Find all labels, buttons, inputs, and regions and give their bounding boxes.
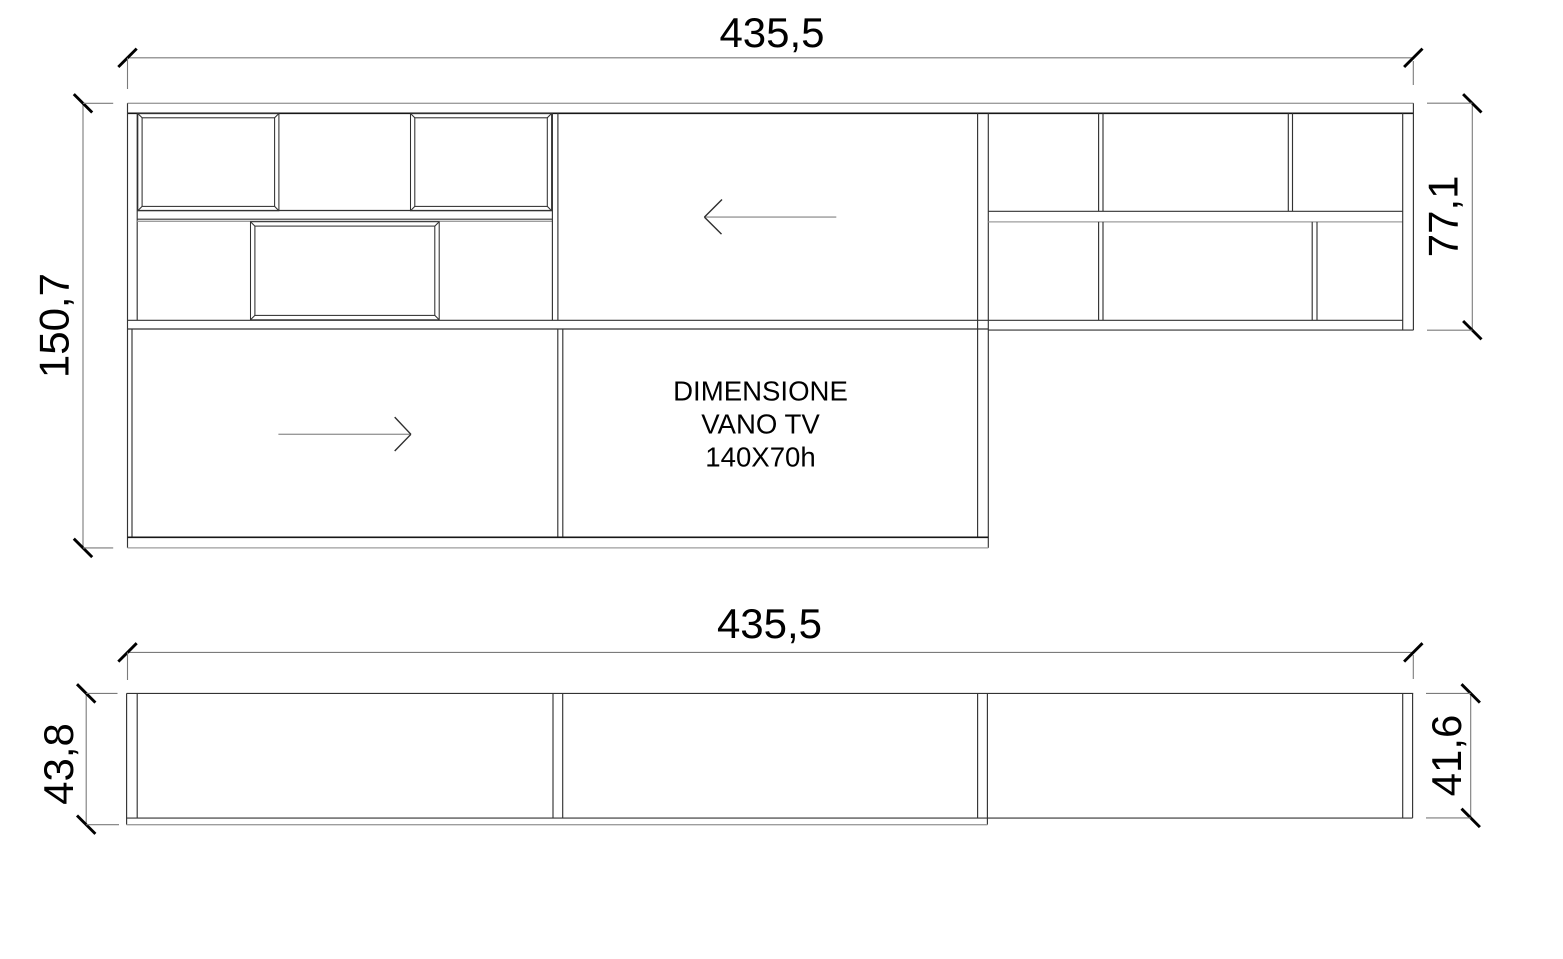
svg-text:43,8: 43,8 bbox=[35, 723, 82, 805]
svg-text:150,7: 150,7 bbox=[31, 273, 78, 378]
svg-text:140X70h: 140X70h bbox=[705, 441, 815, 472]
svg-text:77,1: 77,1 bbox=[1420, 176, 1467, 258]
svg-text:435,5: 435,5 bbox=[717, 600, 822, 647]
svg-text:435,5: 435,5 bbox=[719, 9, 824, 56]
svg-text:41,6: 41,6 bbox=[1423, 715, 1470, 797]
svg-text:DIMENSIONE: DIMENSIONE bbox=[673, 375, 848, 406]
svg-text:VANO TV: VANO TV bbox=[701, 408, 820, 439]
